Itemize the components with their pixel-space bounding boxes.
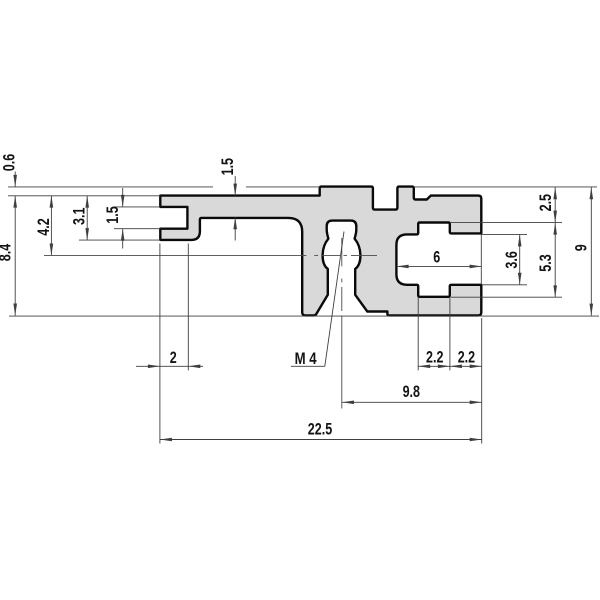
svg-text:4.2: 4.2: [35, 218, 53, 235]
svg-text:2: 2: [170, 349, 177, 367]
svg-text:0.6: 0.6: [1, 154, 19, 171]
svg-text:M 4: M 4: [295, 350, 318, 368]
svg-text:2.2: 2.2: [426, 349, 443, 367]
svg-text:3.6: 3.6: [503, 251, 521, 268]
svg-text:3.1: 3.1: [71, 208, 89, 225]
svg-text:9: 9: [573, 244, 591, 251]
svg-text:1.5: 1.5: [104, 206, 122, 223]
svg-text:22.5: 22.5: [308, 421, 332, 439]
svg-text:9.8: 9.8: [403, 383, 420, 401]
svg-text:5.3: 5.3: [537, 254, 555, 271]
svg-text:6: 6: [433, 249, 440, 267]
svg-text:2.5: 2.5: [537, 194, 555, 211]
svg-text:1.5: 1.5: [219, 158, 237, 175]
svg-text:2.2: 2.2: [458, 349, 475, 367]
svg-text:8.4: 8.4: [0, 243, 14, 261]
